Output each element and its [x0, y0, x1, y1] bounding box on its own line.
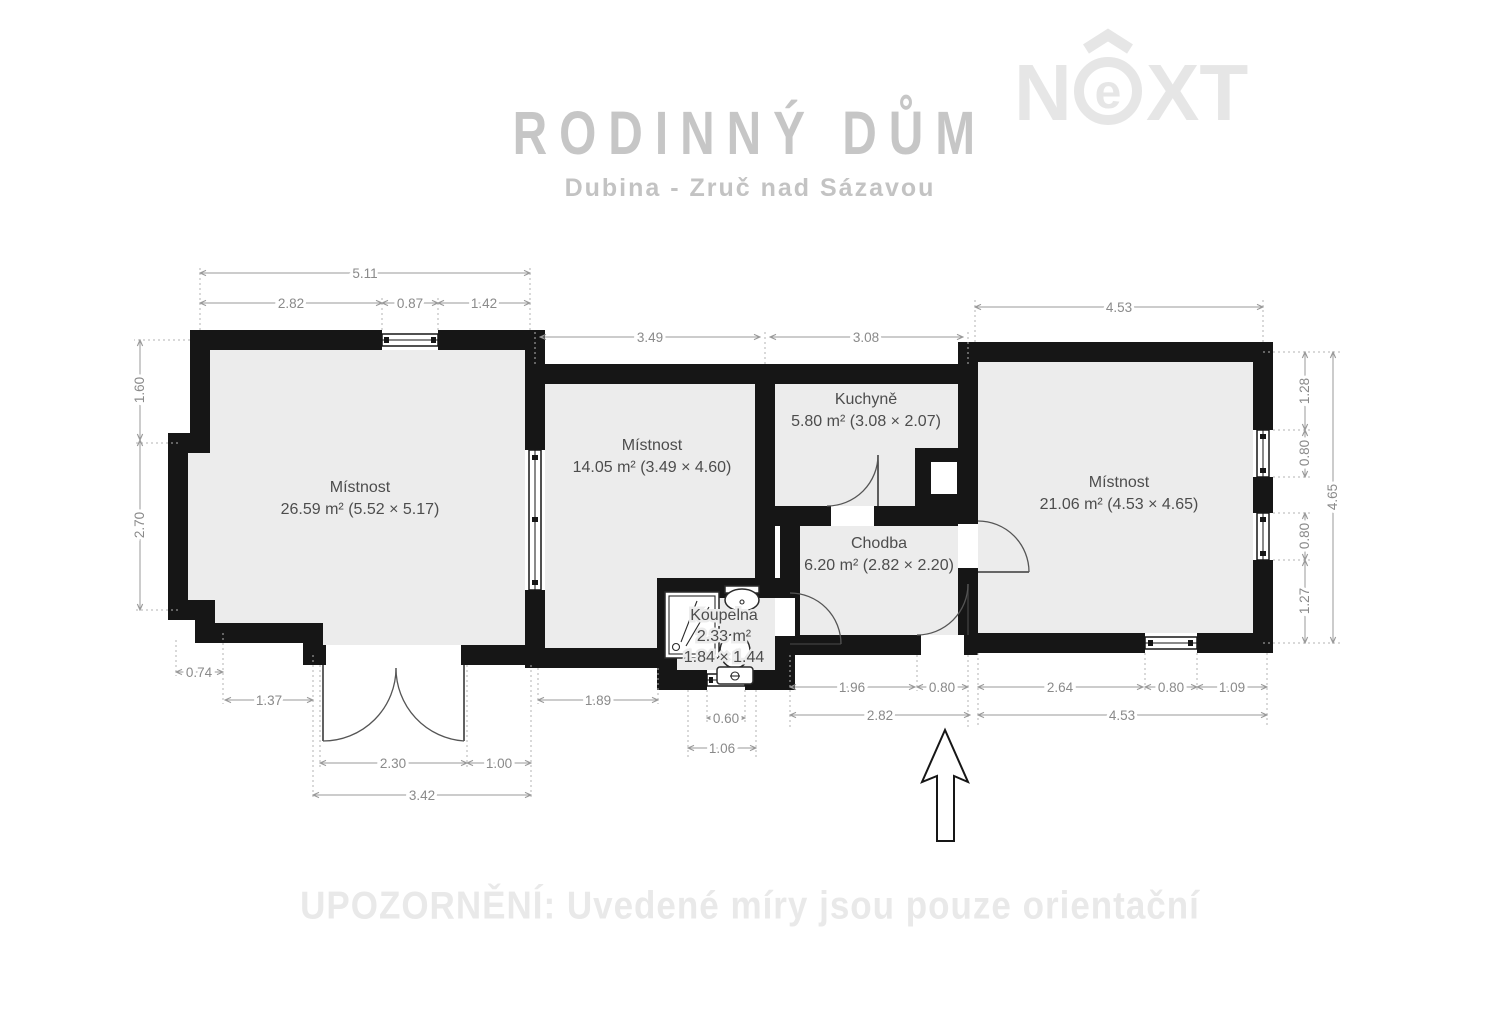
dim-label: 2.82: [867, 708, 893, 723]
french-door-room1: [320, 645, 467, 741]
dimension: 3.49: [540, 330, 760, 345]
dimension: 0.87: [382, 296, 438, 311]
dimension: 1.89: [538, 693, 658, 708]
dim-label: 2.64: [1047, 680, 1074, 695]
dimension: 0.80: [1145, 680, 1197, 695]
window-room3-right-2: [1253, 513, 1273, 560]
dim-label: 0.87: [397, 296, 423, 311]
dimension: 1.60: [132, 340, 147, 440]
dimension: 1.96: [790, 680, 915, 695]
dim-label: 1.00: [486, 756, 512, 771]
dim-label: 1.09: [1219, 680, 1245, 695]
dim-label: 1.89: [585, 693, 611, 708]
dimension: 0.74: [176, 665, 223, 680]
dimension: 0.80: [1297, 430, 1312, 477]
dim-label: 4.53: [1109, 708, 1135, 723]
kitchen-details: 5.80 m² (3.08 × 2.07): [791, 413, 941, 430]
dimension: 1.09: [1197, 680, 1267, 695]
floorplan-page: RODINNÝ DŮM Dubina - Zruč nad Sázavou N …: [0, 0, 1500, 1018]
window-interior-room1-room2: [525, 450, 545, 590]
dim-label: 2.70: [132, 512, 147, 538]
dimension: 4.65: [1325, 352, 1340, 643]
dim-label: 4.53: [1106, 300, 1132, 315]
shaft-opening: [931, 462, 957, 494]
dimension: 1.42: [438, 296, 530, 311]
kitchen-name: Kuchyně: [835, 391, 897, 408]
dim-label: 3.42: [409, 788, 435, 803]
room-2-name: Místnost: [622, 437, 683, 454]
dimension: 0.80: [1297, 513, 1312, 560]
room-1-floor: [178, 340, 535, 655]
dimension: 1.00: [467, 756, 531, 771]
dimension: 2.64: [978, 680, 1143, 695]
dimension: 0.80: [917, 680, 968, 695]
dim-label: 4.65: [1325, 484, 1340, 510]
dim-label: 0.60: [713, 711, 739, 726]
dimension: 1.27: [1297, 560, 1312, 643]
footer: UPOZORNĚNÍ: Uvedené míry jsou pouze orie…: [0, 886, 1500, 926]
dim-label: 2.30: [380, 756, 406, 771]
dim-label: 1.37: [256, 693, 282, 708]
room-1-name: Místnost: [330, 479, 391, 496]
window-room3-right-1: [1253, 430, 1273, 477]
bathroom-area: 2.33 m²: [697, 628, 752, 645]
dimension: 2.82: [200, 296, 382, 311]
dimension: 4.53: [975, 300, 1263, 315]
window-room3-bottom: [1145, 633, 1197, 653]
room-2-details: 14.05 m² (3.49 × 4.60): [573, 459, 732, 476]
dim-label: 1.42: [471, 296, 497, 311]
dimension: 1.28: [1297, 352, 1312, 430]
dimension: 1.06: [688, 741, 756, 756]
dim-label: 0.80: [1297, 440, 1312, 466]
dimension: 2.70: [132, 440, 147, 610]
dim-label: 3.49: [637, 330, 663, 345]
measurement-disclaimer: UPOZORNĚNÍ: Uvedené míry jsou pouze orie…: [300, 884, 1200, 929]
dimension: 0.60: [707, 711, 745, 726]
hall-name: Chodba: [851, 535, 907, 552]
dim-label: 3.08: [853, 330, 879, 345]
dimension: 3.08: [770, 330, 963, 345]
room-3-details: 21.06 m² (4.53 × 4.65): [1040, 496, 1199, 513]
dimension: 2.30: [320, 756, 467, 771]
dimension: 1.37: [225, 693, 313, 708]
dim-label: 1.28: [1297, 378, 1312, 404]
dimension: 3.42: [313, 788, 531, 803]
dim-label: 1.27: [1297, 588, 1312, 614]
dimension: 2.82: [790, 708, 970, 723]
hall-details: 6.20 m² (2.82 × 2.20): [804, 557, 954, 574]
dim-label: 0.80: [1158, 680, 1184, 695]
entrance-arrow-icon: [922, 730, 968, 841]
bathroom-name: Koupelna: [690, 607, 758, 624]
dimension: 5.11: [200, 266, 530, 281]
dim-label: 0.74: [186, 665, 213, 680]
room-1-details: 26.59 m² (5.52 × 5.17): [281, 501, 440, 518]
dim-label: 0.80: [929, 680, 955, 695]
dim-label: 1.06: [709, 741, 735, 756]
bathroom-size: 1.84 × 1.44: [684, 649, 765, 666]
window-room1-top: [382, 330, 438, 350]
dim-label: 0.80: [1297, 523, 1312, 549]
room-3-name: Místnost: [1089, 474, 1150, 491]
dim-label: 2.82: [278, 296, 304, 311]
dimension: 4.53: [978, 708, 1267, 723]
dim-label: 1.96: [839, 680, 865, 695]
dim-label: 5.11: [352, 266, 377, 281]
floor-plan: Místnost 26.59 m² (5.52 × 5.17) Místnost…: [0, 0, 1500, 1018]
dim-label: 1.60: [132, 377, 147, 403]
